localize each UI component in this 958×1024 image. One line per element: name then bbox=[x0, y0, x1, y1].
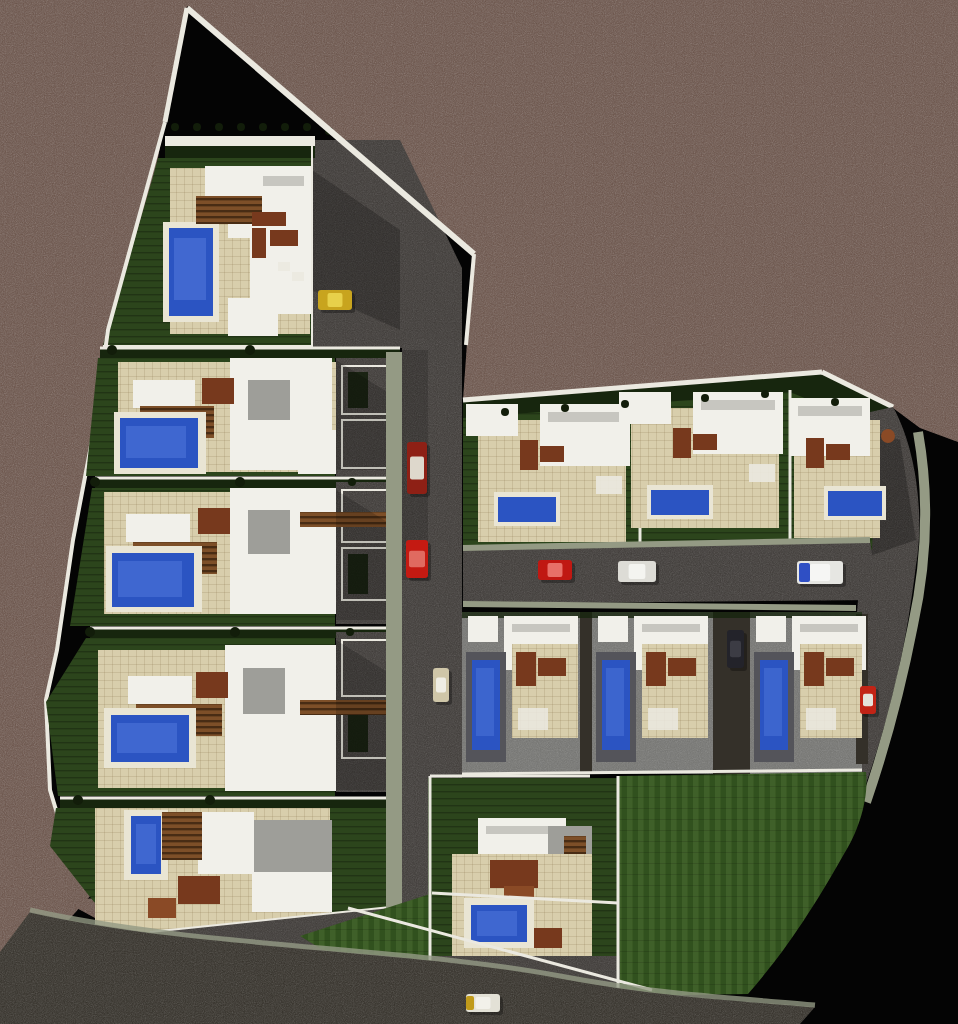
car-yellow bbox=[318, 290, 355, 313]
sofa bbox=[252, 212, 286, 226]
sofa bbox=[178, 876, 220, 904]
chair bbox=[292, 272, 304, 281]
pool-water bbox=[174, 238, 206, 300]
villa5-roof-gray bbox=[252, 820, 332, 872]
car-white-bottom-roof bbox=[476, 997, 491, 1009]
villa5-building bbox=[198, 812, 254, 874]
sofa bbox=[646, 652, 666, 686]
car-red bbox=[406, 540, 431, 581]
sofa bbox=[490, 860, 538, 888]
van-white-blue bbox=[797, 561, 846, 587]
pergola-roof bbox=[126, 514, 190, 542]
sidewalk-left bbox=[386, 352, 402, 964]
hedge-wall-top bbox=[165, 136, 315, 146]
villa5-wing bbox=[252, 872, 332, 912]
shrub bbox=[501, 408, 509, 416]
pergola-roof bbox=[205, 166, 263, 196]
pool-water bbox=[477, 911, 517, 936]
chairs bbox=[806, 708, 836, 730]
villaR3-pool bbox=[828, 491, 882, 516]
sofa bbox=[806, 438, 824, 468]
car-red-2-roof bbox=[548, 563, 563, 577]
sofa bbox=[826, 444, 850, 460]
pool-water bbox=[476, 668, 494, 736]
shrub bbox=[561, 404, 569, 412]
van-red-roof bbox=[410, 457, 424, 480]
roof-court bbox=[243, 668, 285, 714]
car-red-mini bbox=[860, 686, 879, 717]
shrub bbox=[73, 795, 83, 805]
road1-curb-bottom bbox=[463, 604, 856, 608]
shrub bbox=[303, 123, 311, 131]
car-white-bottom-cab bbox=[466, 996, 474, 1010]
car-white-bottom bbox=[466, 994, 503, 1015]
villa4-wing bbox=[293, 722, 335, 778]
sofa bbox=[540, 446, 564, 462]
pergola-slats-texture bbox=[162, 812, 202, 860]
scene-shapes bbox=[0, 0, 958, 1024]
car-white-roof bbox=[629, 564, 646, 579]
car-red-mini-roof bbox=[863, 694, 873, 706]
car-white-small-roof bbox=[436, 678, 446, 693]
roof-court bbox=[248, 510, 290, 554]
villaR2-pool bbox=[651, 490, 709, 515]
chairs bbox=[596, 476, 622, 494]
sofa bbox=[668, 658, 696, 676]
van-red bbox=[407, 442, 430, 497]
shrub bbox=[215, 123, 223, 131]
sofa bbox=[252, 228, 266, 258]
shrub bbox=[85, 627, 95, 637]
sofa bbox=[538, 658, 566, 676]
sofa bbox=[516, 652, 536, 686]
sofa bbox=[202, 378, 234, 404]
chairs bbox=[749, 464, 775, 482]
roof-shade bbox=[798, 406, 862, 416]
pergola-roof bbox=[468, 616, 498, 642]
sofa bbox=[804, 652, 824, 686]
villa3-wing bbox=[298, 558, 336, 608]
hedge-top-row bbox=[165, 146, 315, 158]
villaR1-pool bbox=[498, 497, 556, 522]
pergola-roof bbox=[133, 380, 195, 408]
pool-water bbox=[118, 561, 182, 597]
shrub bbox=[701, 394, 709, 402]
shrub bbox=[107, 345, 117, 355]
site-plan-svg bbox=[0, 0, 958, 1024]
sofa bbox=[534, 928, 562, 948]
shrub bbox=[205, 795, 215, 805]
sofa bbox=[673, 428, 691, 458]
roof-shade bbox=[701, 400, 775, 410]
car-white bbox=[618, 561, 659, 585]
roof-shade bbox=[548, 412, 622, 422]
shrub bbox=[348, 478, 356, 486]
driveway-gap bbox=[580, 612, 592, 774]
car-dark bbox=[727, 630, 747, 671]
roof-shade bbox=[642, 624, 700, 632]
table bbox=[148, 898, 176, 918]
car-white-small bbox=[433, 668, 452, 705]
roof-shade bbox=[512, 624, 570, 632]
sofa bbox=[196, 672, 228, 698]
roof-shade bbox=[800, 624, 858, 632]
pergola-roof bbox=[598, 616, 628, 642]
pergola-roof bbox=[128, 676, 192, 704]
pool-water bbox=[764, 668, 782, 736]
pergola-roof bbox=[466, 404, 518, 436]
sofa bbox=[826, 658, 854, 676]
shrub bbox=[193, 123, 201, 131]
shrub bbox=[245, 345, 255, 355]
villa1-building-wing2 bbox=[228, 298, 278, 336]
roof-court bbox=[248, 380, 290, 420]
car-yellow-roof bbox=[328, 293, 343, 307]
sofa bbox=[198, 508, 230, 534]
sofa bbox=[520, 440, 538, 470]
pool-water bbox=[117, 723, 177, 753]
chairs bbox=[648, 708, 678, 730]
shrub bbox=[90, 477, 100, 487]
shrub bbox=[235, 477, 245, 487]
shrub bbox=[831, 398, 839, 406]
shrub bbox=[237, 123, 245, 131]
shrub bbox=[621, 400, 629, 408]
shrub bbox=[259, 123, 267, 131]
pool-water bbox=[136, 824, 156, 864]
shrub bbox=[171, 123, 179, 131]
sofa bbox=[693, 434, 717, 450]
van-white-blue-cab bbox=[799, 563, 810, 582]
shrub bbox=[761, 390, 769, 398]
sofa bbox=[270, 230, 298, 246]
pool-water bbox=[126, 426, 186, 458]
pergola-roof bbox=[756, 616, 786, 642]
shrub bbox=[281, 123, 289, 131]
villa2-wing bbox=[298, 430, 336, 474]
chairs bbox=[518, 708, 548, 730]
van-white-blue-roof bbox=[810, 564, 830, 581]
pergola-roof bbox=[619, 392, 671, 424]
car-dark-roof bbox=[730, 641, 741, 658]
shrub bbox=[346, 628, 354, 636]
car-red-2 bbox=[538, 560, 575, 583]
roof-shade bbox=[486, 826, 556, 834]
car-red-roof bbox=[409, 551, 425, 568]
site-plan-render bbox=[0, 0, 958, 1024]
shrub bbox=[230, 627, 240, 637]
planter bbox=[881, 429, 895, 443]
chair bbox=[278, 262, 290, 271]
pool-water bbox=[606, 668, 624, 736]
